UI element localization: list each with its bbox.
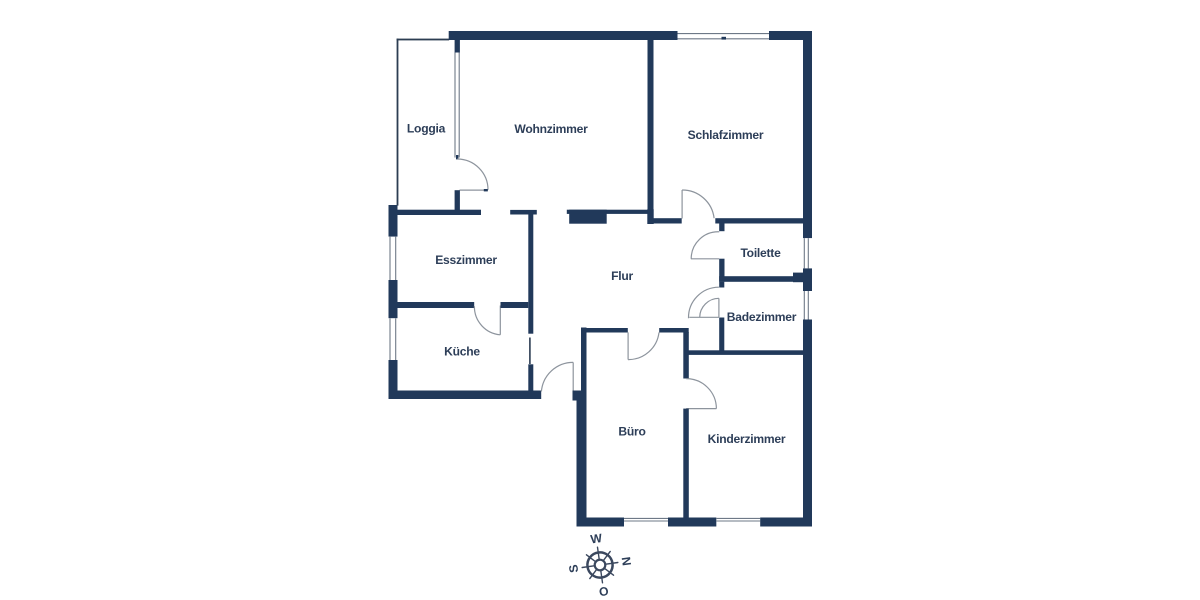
svg-text:Büro: Büro: [618, 424, 645, 438]
svg-text:Kinderzimmer: Kinderzimmer: [708, 432, 786, 446]
svg-text:Flur: Flur: [611, 269, 633, 283]
svg-text:Esszimmer: Esszimmer: [435, 253, 497, 267]
svg-text:Schlafzimmer: Schlafzimmer: [688, 128, 764, 142]
svg-text:Toilette: Toilette: [740, 246, 781, 260]
svg-text:Badezimmer: Badezimmer: [727, 310, 797, 324]
svg-text:Wohnzimmer: Wohnzimmer: [514, 122, 588, 136]
svg-text:Loggia: Loggia: [407, 122, 446, 136]
svg-text:O: O: [598, 584, 609, 599]
svg-text:Küche: Küche: [444, 344, 480, 358]
